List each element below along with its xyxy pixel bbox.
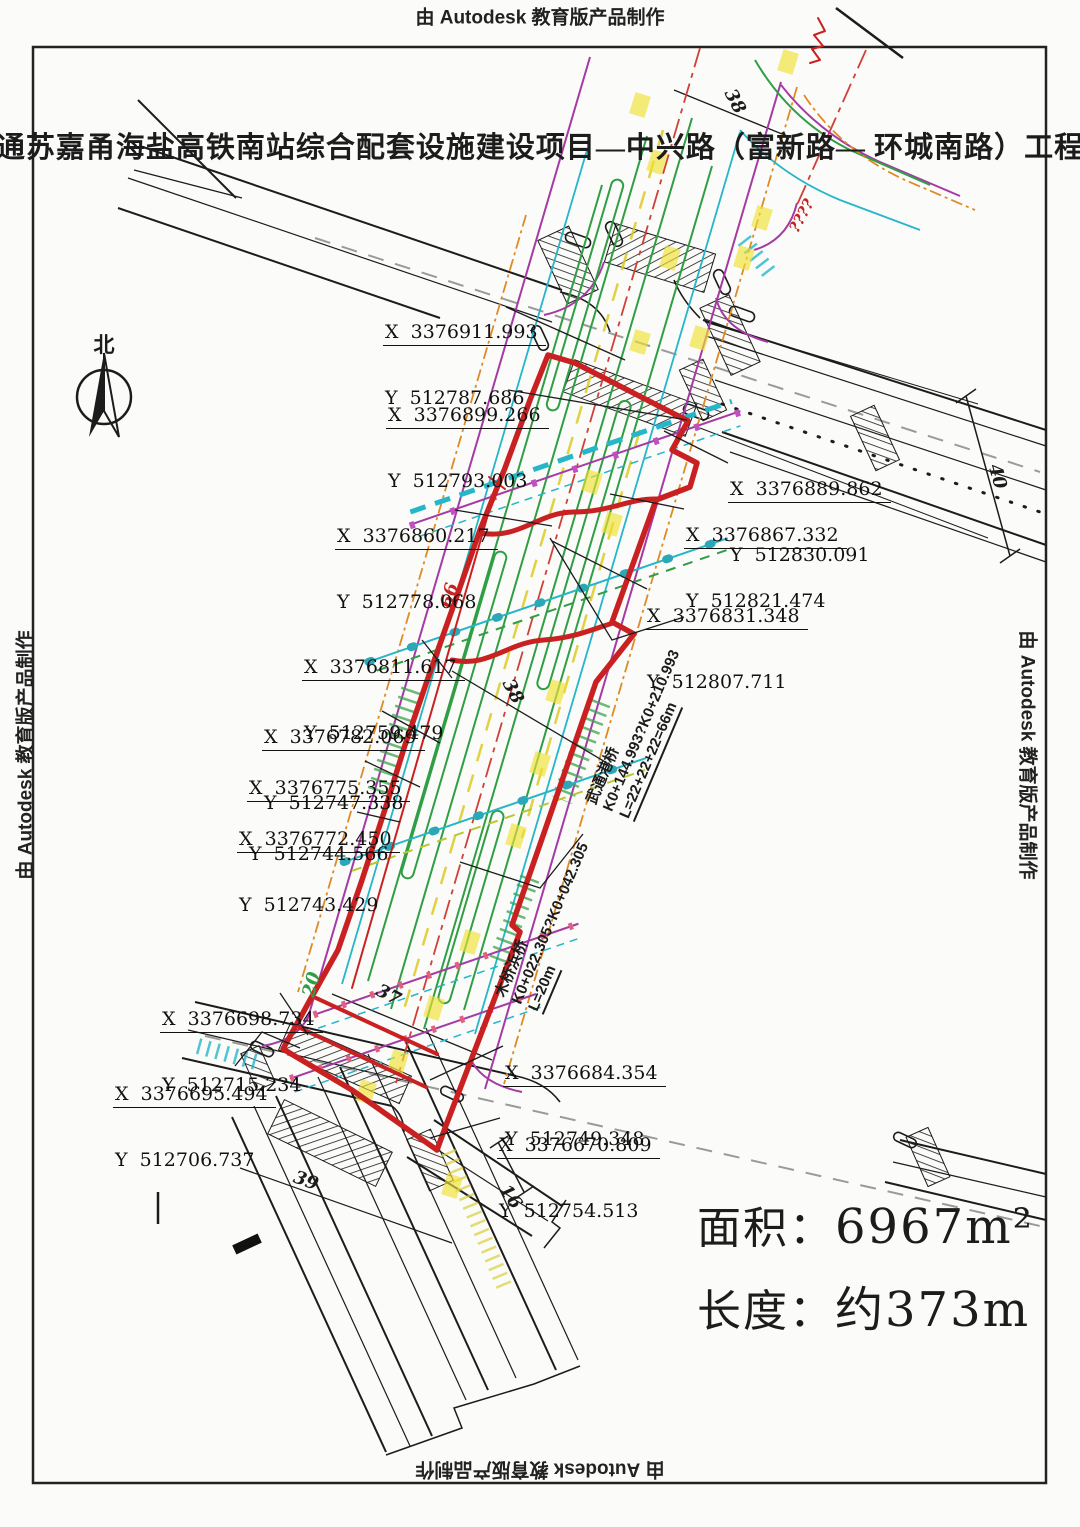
north-label: 北 [94,334,115,357]
coordinate-x: X 3376695.494 [113,1085,276,1108]
coordinate-x: X 3376811.617 [302,658,465,681]
dim-39-leg: 39 [291,1167,322,1195]
dim-38-mid: 38 [498,675,529,707]
area-label: 面积： [697,1192,835,1256]
summary-block: 面积： 6967m² 长度： 约373m [697,1192,1034,1354]
dim-38-top: 38 [720,85,751,117]
coordinate-label: X 3376695.494 Y 512706.737 [113,1045,276,1191]
north-arrow: 北 [77,334,131,437]
coordinate-x: X 3376860.217 [335,527,498,550]
watermark-left: 由 Autodesk 教育版产品制作 [11,630,38,879]
coordinate-y: Y 512754.513 [497,1199,660,1222]
coordinate-x: X 3376899.266 [386,406,549,429]
length-value: 约373m [835,1270,1030,1340]
coordinate-x: X 3376867.332 [684,526,847,549]
coordinate-y: Y 512743.429 [237,893,400,916]
cad-sheet: 38 40 38 66 20 37 39 16 ???? 北 由 Autodes… [0,0,1080,1527]
coordinate-label: X 3376860.217 Y 512778.068 [335,487,498,633]
watermark-bottom: 由 Autodesk 教育版产品制作 [415,1458,664,1485]
area-value: 6967m² [835,1199,1034,1255]
length-label: 长度： [697,1275,835,1339]
coordinate-x: X 3376911.993 [383,323,546,346]
coordinate-x: X 3376772.450 [237,830,400,853]
coordinate-label: X 3376670.809 Y 512754.513 [497,1096,660,1242]
coordinate-y: Y 512706.737 [113,1148,276,1171]
coordinate-y: Y 512778.068 [335,590,498,613]
red-question-marks: ???? [785,196,817,236]
coordinate-x: X 3376698.734 [160,1010,323,1033]
watermark-top: 由 Autodesk 教育版产品制作 [415,3,664,30]
coordinate-x: X 3376684.354 [503,1064,666,1087]
drawing-title: 通苏嘉甬海盐高铁南站综合配套设施建设项目—中兴路（富新路— 环城南路）工程 [0,124,1080,166]
watermark-right: 由 Autodesk 教育版产品制作 [1016,630,1043,879]
coordinate-x: X 3376670.809 [497,1136,660,1159]
coordinate-label: X 3376772.450 Y 512743.429 [237,790,400,936]
dim-40-right: 40 [984,462,1011,492]
